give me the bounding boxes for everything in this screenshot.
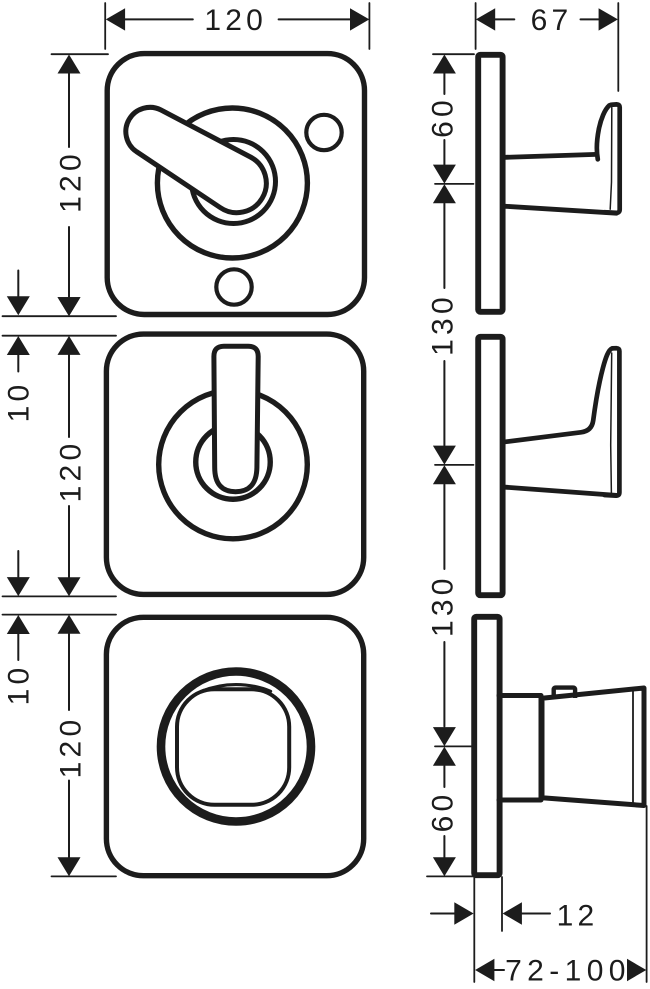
svg-text:72-100: 72-100	[505, 954, 631, 987]
svg-text:120: 120	[55, 150, 88, 213]
svg-text:120: 120	[204, 4, 267, 37]
svg-text:120: 120	[55, 716, 88, 779]
svg-text:130: 130	[426, 574, 459, 637]
svg-text:10: 10	[3, 664, 36, 706]
svg-text:60: 60	[426, 96, 459, 138]
svg-text:60: 60	[426, 791, 459, 833]
svg-text:120: 120	[55, 440, 88, 503]
svg-text:10: 10	[3, 381, 36, 423]
svg-text:130: 130	[426, 293, 459, 356]
svg-text:67: 67	[531, 4, 573, 37]
svg-text:12: 12	[557, 899, 599, 932]
